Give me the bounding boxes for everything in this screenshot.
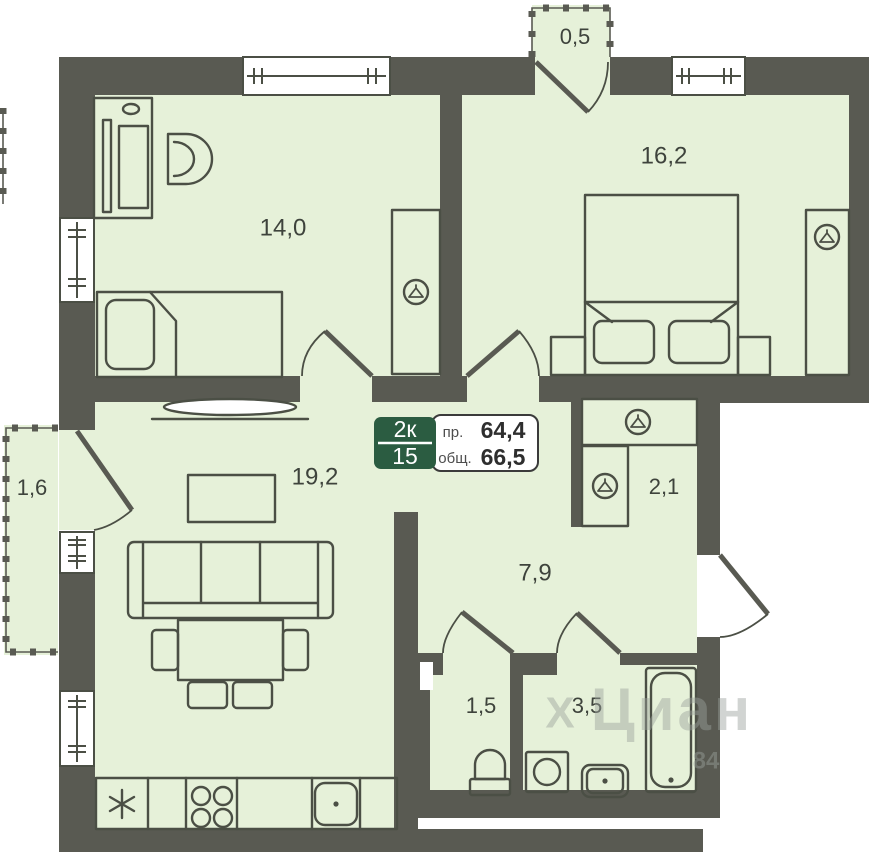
floor-door-opening-bedroom-right xyxy=(467,376,539,402)
floor-balcony-left xyxy=(4,425,58,655)
watermark-logo: Х xyxy=(545,689,574,738)
badge-floor: 15 xyxy=(392,443,418,469)
hanger-icon xyxy=(593,474,617,498)
door-entrance xyxy=(720,555,768,637)
room-label-bedroom-right: 16,2 xyxy=(641,142,688,169)
room-label-bedroom-left: 14,0 xyxy=(260,214,307,241)
room-label-living-room: 19,2 xyxy=(292,463,339,490)
vent-shaft xyxy=(420,662,433,690)
window-left-lower xyxy=(60,691,94,766)
floor-bedroom-right xyxy=(462,95,849,378)
floor-plan: 14,0 16,2 0,5 1,6 19,2 2,1 7,9 1,5 3,5 2… xyxy=(0,0,869,852)
badge-value-total: 66,5 xyxy=(481,444,526,470)
watermark-text: Циан xyxy=(591,676,753,743)
floor-balcony-top-opening xyxy=(535,57,610,95)
hanger-icon xyxy=(626,410,650,434)
hanger-icon xyxy=(815,225,839,249)
room-label-closet: 2,1 xyxy=(649,474,680,499)
room-label-hallway: 7,9 xyxy=(518,559,551,586)
badge-label-projected: пр. xyxy=(443,424,464,441)
window-top-right xyxy=(672,57,745,95)
floor-door-opening-bedroom-left xyxy=(300,376,372,402)
badge-label-total: общ. xyxy=(438,450,471,467)
window-top-left xyxy=(243,57,390,95)
badge-value-projected: 64,4 xyxy=(481,417,526,443)
room-label-balcony-left: 1,6 xyxy=(17,475,48,500)
room-label-toilet: 1,5 xyxy=(466,693,497,718)
hanger-icon xyxy=(404,280,428,304)
room-label-balcony-top: 0,5 xyxy=(560,24,591,49)
window-left-middle xyxy=(60,532,94,573)
badge-rooms: 2к xyxy=(394,416,418,442)
watermark-digits: 84 xyxy=(693,747,720,774)
area-badge: 2к 15 пр. 64,4 общ. 66,5 xyxy=(374,415,538,471)
window-left-upper xyxy=(60,218,94,302)
